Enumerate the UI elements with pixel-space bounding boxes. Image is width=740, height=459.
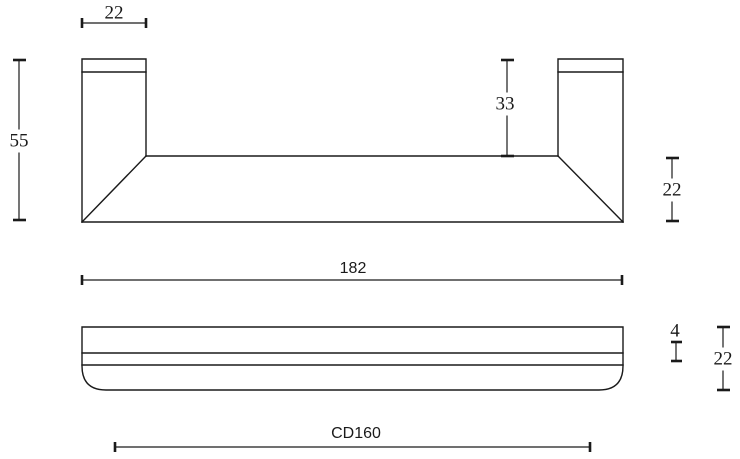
front-view-right-diagonal [558,156,623,222]
dim-length-label: 182 [340,261,367,277]
front-view-left-post [82,59,146,222]
side-view-outline [82,327,623,390]
dim-post-height-label: 33 [495,93,516,116]
dim-center-distance-line [115,442,590,452]
dim-post-width-label: 22 [105,4,124,23]
dim-total-height-label: 55 [9,130,30,153]
dim-groove-line [671,342,682,361]
dim-center-distance-label: CD160 [331,426,381,442]
dim-side-height-label: 22 [713,348,734,371]
front-view-left-diagonal [82,156,146,222]
drawing-canvas: 22 55 33 22 182 4 22 CD160 [0,0,740,459]
front-view-right-post [558,59,623,222]
dim-groove-label: 4 [670,322,680,341]
dim-bar-height-label: 22 [662,179,683,202]
handle-technical-drawing [0,0,740,459]
